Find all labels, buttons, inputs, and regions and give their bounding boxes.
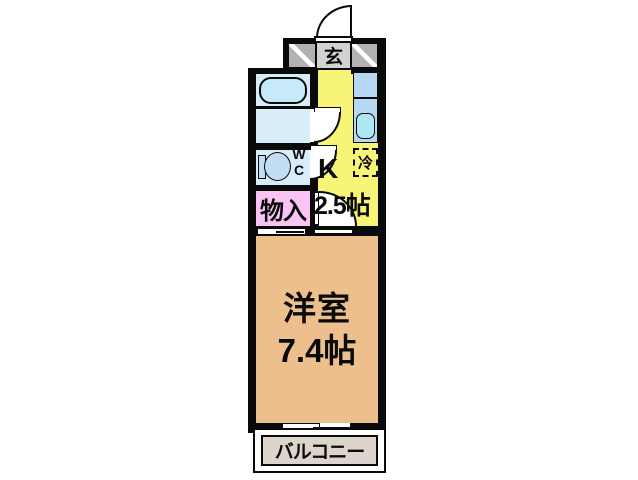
entrance-door-swing-arc: [316, 5, 352, 38]
wall-wash-wc-divider: [256, 143, 318, 150]
wall-entrance-left: [283, 38, 288, 72]
kitchen-label: K: [318, 153, 338, 185]
entrance-floor: 玄: [316, 43, 351, 70]
closet-label: 物入: [260, 191, 306, 226]
entrance-wall-hatch-left: [288, 43, 316, 68]
kitchen-sink: [356, 113, 375, 139]
kitchen-counter-top: [353, 72, 378, 98]
refrigerator-space: 冷: [353, 148, 378, 177]
wall-bathroom-top: [248, 68, 316, 74]
main-room-name: 洋室: [283, 288, 351, 330]
entrance-wall-hatch-right: [351, 43, 378, 68]
bathtub: [259, 77, 307, 104]
main-room-size: 7.4帖: [278, 330, 357, 372]
toilet-bowl: [264, 152, 291, 181]
wall-left: [248, 68, 256, 433]
wall-wc-closet-divider: [256, 185, 318, 191]
entrance-label: 玄: [324, 42, 343, 69]
balcony-floor: バルコニー: [261, 435, 378, 466]
closet-sliding-door: [257, 228, 306, 235]
closet-sliding-door-rail: [276, 231, 304, 233]
wall-bath-wash-divider: [256, 106, 312, 109]
wc-label-w: W: [291, 146, 307, 162]
kitchen-size-label: 2.5帖: [314, 186, 370, 222]
washroom-floor: [256, 108, 310, 144]
main-room-floor: 洋室 7.4帖: [256, 236, 378, 423]
closet-floor: 物入: [256, 190, 310, 227]
balcony-label: バルコニー: [275, 437, 365, 464]
kitchen-room-door-threshold: [315, 228, 352, 235]
wc-label-c: C: [291, 162, 307, 178]
entrance-door-leaf: [314, 36, 353, 43]
refrigerator-label: 冷: [358, 152, 373, 173]
floorplan: 物入 玄 洋室 7.4帖 冷: [0, 0, 638, 480]
wc-label: W C: [291, 146, 307, 178]
